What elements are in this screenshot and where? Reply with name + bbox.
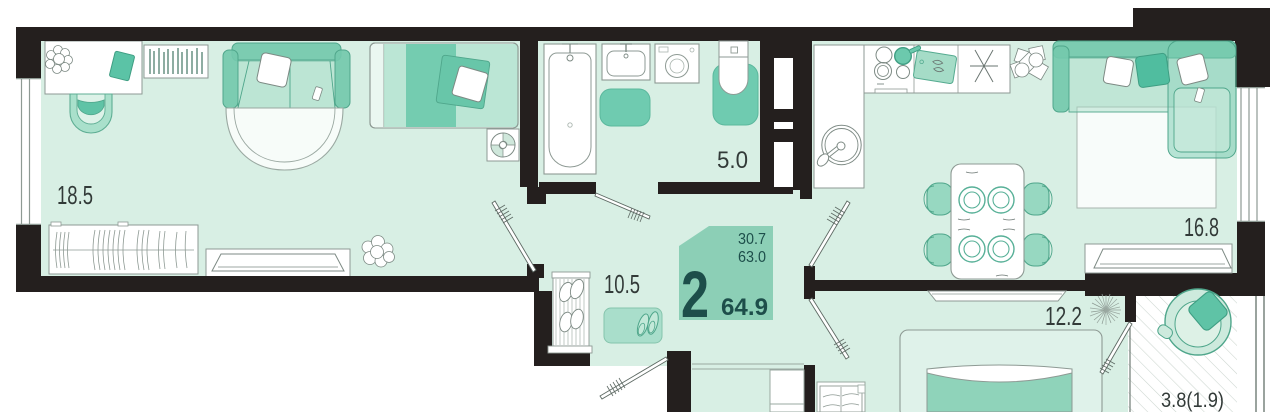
svg-text:30.7: 30.7	[738, 231, 766, 248]
svg-text:16.8: 16.8	[1184, 212, 1219, 242]
svg-text:10.5: 10.5	[604, 269, 640, 299]
svg-text:3.8(1.9): 3.8(1.9)	[1161, 389, 1224, 412]
svg-text:18.5: 18.5	[57, 180, 93, 210]
svg-text:63.0: 63.0	[738, 249, 766, 266]
svg-text:64.9: 64.9	[721, 294, 768, 321]
svg-text:5.0: 5.0	[717, 147, 748, 174]
svg-text:2: 2	[681, 257, 709, 331]
svg-text:12.2: 12.2	[1045, 301, 1082, 331]
